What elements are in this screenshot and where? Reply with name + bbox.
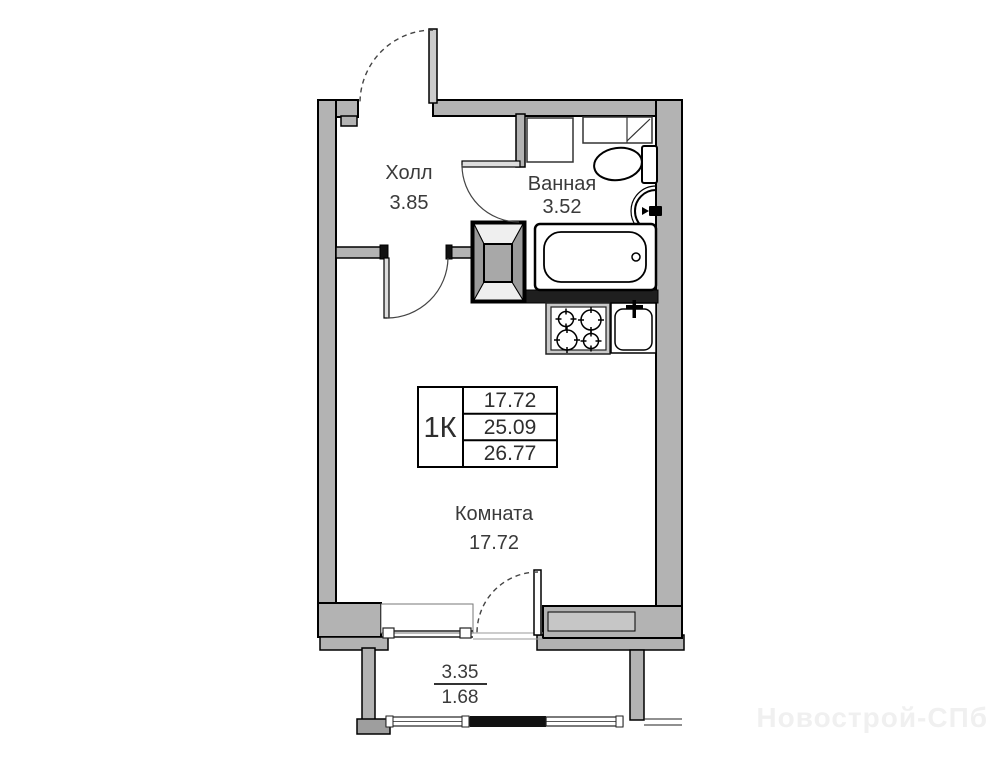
room-door-leaf <box>384 258 389 318</box>
wall-bottom-right-inset <box>548 612 635 631</box>
wall-hall-stub-cap <box>380 245 388 259</box>
floorplan-canvas: 1К 17.72 25.09 26.77 Холл 3.85 Ванная 3.… <box>0 0 1003 768</box>
wall-hall-stub <box>336 247 381 258</box>
info-table-row-area: 25.09 <box>484 416 537 439</box>
toilet <box>592 145 657 183</box>
room-door-arc <box>387 258 448 318</box>
balcony-door <box>473 570 543 639</box>
shelf-unit <box>583 117 652 143</box>
wall-left <box>318 100 336 607</box>
room-door <box>384 258 448 318</box>
balcony-wall-left <box>362 648 375 720</box>
bathroom-door-arc <box>462 165 519 222</box>
window-end-left <box>383 628 394 638</box>
wall-bathroom-left <box>516 114 525 167</box>
kitchen-sink <box>611 300 656 353</box>
hall-name-label: Холл <box>385 162 432 184</box>
balcony-door-leaf <box>534 570 541 635</box>
entrance-door-arc <box>360 30 433 102</box>
window-end-right <box>460 628 471 638</box>
wall-door-stub <box>450 247 472 258</box>
washing-machine <box>527 118 573 162</box>
wall-right <box>656 100 682 610</box>
floorplan-svg: 1К 17.72 25.09 26.77 Холл 3.85 Ванная 3.… <box>0 0 1003 768</box>
balcony-dim-bottom: 1.68 <box>442 687 479 708</box>
wall-top <box>433 100 672 116</box>
info-table: 1К 17.72 25.09 26.77 <box>418 387 557 467</box>
toilet-tank <box>642 146 657 183</box>
wall-top-left-tab <box>341 116 357 126</box>
glazing-tick-1 <box>386 716 393 727</box>
info-table-row-living: 17.72 <box>484 389 537 412</box>
vent-shaft <box>472 222 525 302</box>
entrance-door <box>360 29 437 103</box>
hall-area-label: 3.85 <box>390 192 429 214</box>
bathroom-area-label: 3.52 <box>543 196 582 218</box>
entrance-door-leaf <box>429 29 437 103</box>
sink-tap <box>649 206 662 216</box>
window-parapet <box>381 604 473 633</box>
wall-door-stub-cap <box>446 245 452 259</box>
bathroom-name-label: Ванная <box>528 173 597 195</box>
balcony-wall-right <box>630 650 644 720</box>
shelf-rect <box>583 117 652 143</box>
slab-strip-left <box>320 637 388 650</box>
room-name-label: Комната <box>455 503 534 525</box>
toilet-bowl <box>592 145 644 183</box>
bathtub <box>535 224 656 290</box>
room-area-label: 17.72 <box>469 532 519 554</box>
room-window <box>381 604 473 638</box>
bathtub-drain <box>632 253 640 261</box>
balcony-door-arc <box>477 572 538 633</box>
balcony-dimension: 3.35 1.68 <box>434 662 487 708</box>
balcony-corner-block <box>357 719 390 734</box>
info-table-row-total: 26.77 <box>484 442 537 465</box>
vent-shaft-core <box>484 244 512 282</box>
balcony-dim-top: 3.35 <box>442 662 479 683</box>
kitchen-fixtures <box>546 300 656 354</box>
glazing-tick-3 <box>616 716 623 727</box>
bathtub-inner <box>544 232 646 282</box>
kitchen-tap-bar <box>626 305 643 309</box>
apartment-type-label: 1К <box>423 412 456 444</box>
kitchen-tap-stem <box>633 300 637 318</box>
glazing-tick-2 <box>462 716 469 727</box>
bathroom-door <box>462 161 520 222</box>
wall-bottom-left-pier <box>318 603 381 637</box>
watermark: Новострой-СПб <box>756 702 988 733</box>
stove <box>546 303 610 354</box>
bathroom-door-leaf <box>462 161 520 167</box>
glazing-middle-panel <box>470 716 546 727</box>
